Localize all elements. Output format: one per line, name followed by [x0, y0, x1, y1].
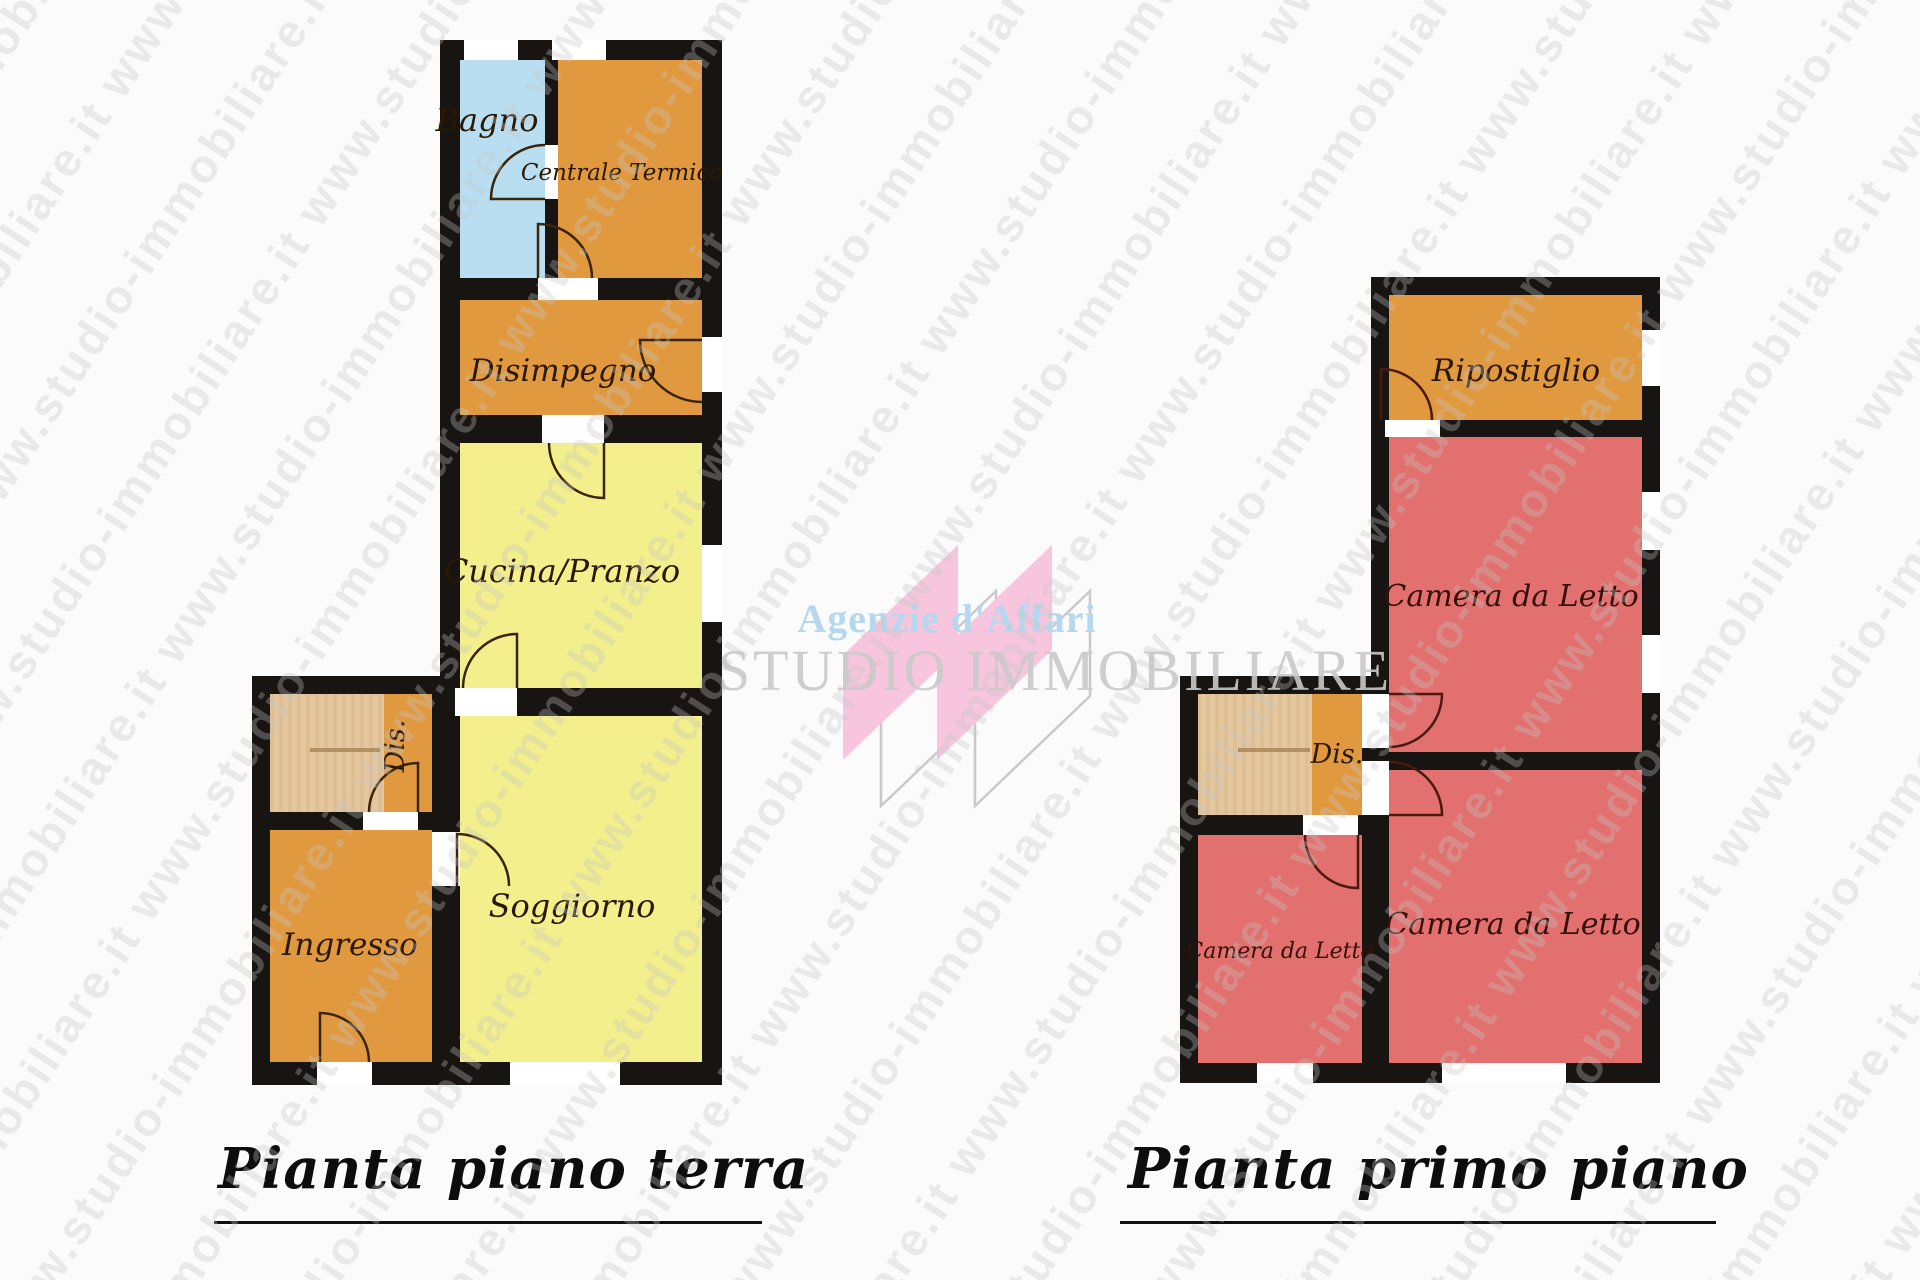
- label-disimpegno: Disimpegno: [469, 353, 657, 389]
- window-camera-right-bottom: [1442, 1063, 1566, 1083]
- label-ingresso: Ingresso: [281, 927, 418, 963]
- ground-floor-title: Pianta piano terra: [218, 1136, 758, 1202]
- door-dis-ingresso: [363, 812, 418, 830]
- agency-logo: Agenzie d'Affari STUDIO IMMOBILIARE: [690, 520, 1430, 820]
- window-bagno-top: [464, 40, 518, 60]
- logo-name: STUDIO IMMOBILIARE: [718, 638, 1392, 703]
- label-dis-ground: Dis.: [380, 720, 411, 774]
- label-ripostiglio: Ripostiglio: [1431, 353, 1600, 389]
- stairs-dis: [270, 694, 384, 812]
- door-ct-disimpegno: [538, 278, 598, 300]
- first-floor-title: Pianta primo piano: [1128, 1136, 1708, 1202]
- door-cucina-soggiorno: [455, 688, 517, 716]
- door-disimpegno-cucina: [542, 415, 604, 443]
- label-bagno: Bagno: [435, 101, 539, 139]
- window-soggiorno-bottom: [510, 1062, 620, 1085]
- window-camera-top-2: [1642, 635, 1660, 693]
- label-soggiorno: Soggiorno: [489, 887, 656, 925]
- floorplan-sheet: Bagno Centrale Termica Disimpegno Cucina…: [0, 0, 1920, 1280]
- ground-floor-title-rule: [214, 1221, 762, 1224]
- label-cucina: Cucina/Pranzo: [444, 552, 680, 590]
- window-ripostiglio-right: [1642, 330, 1660, 386]
- window-camera-top-1: [1642, 492, 1660, 550]
- logo-tagline: Agenzie d'Affari: [797, 596, 1096, 641]
- window-camera-left-bottom: [1257, 1063, 1313, 1083]
- door-entrance: [317, 1062, 372, 1085]
- door-disimpegno-right: [702, 337, 722, 392]
- ground-floor-plan: Bagno Centrale Termica Disimpegno Cucina…: [240, 30, 740, 1092]
- door-ripostiglio: [1385, 420, 1440, 437]
- label-camera-right: Camera da Letto: [1385, 907, 1640, 942]
- label-camera-left: Camera da Letto: [1186, 939, 1373, 964]
- label-centrale-termica: Centrale Termica: [521, 160, 723, 186]
- first-floor-title-rule: [1120, 1221, 1716, 1224]
- window-ct-top: [552, 40, 606, 60]
